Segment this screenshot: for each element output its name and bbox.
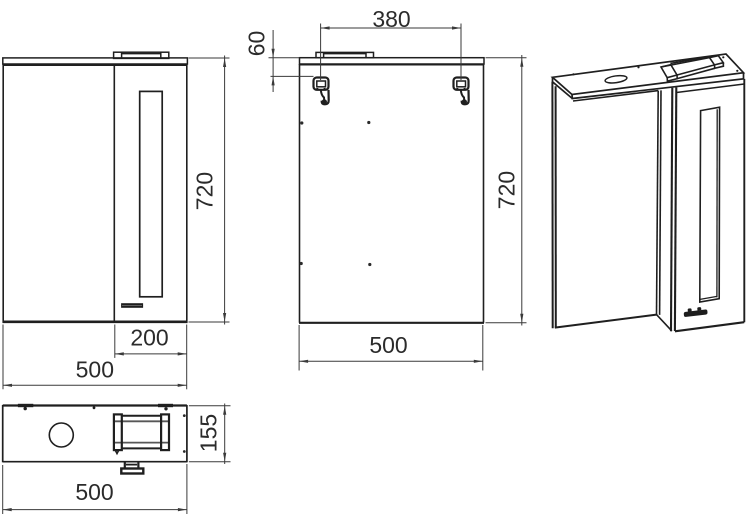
svg-text:500: 500 bbox=[76, 357, 114, 383]
svg-text:720: 720 bbox=[192, 172, 218, 210]
svg-text:200: 200 bbox=[130, 325, 168, 351]
svg-text:500: 500 bbox=[369, 332, 407, 358]
svg-text:720: 720 bbox=[494, 171, 520, 209]
svg-text:500: 500 bbox=[75, 479, 113, 505]
svg-text:155: 155 bbox=[196, 414, 222, 452]
svg-text:380: 380 bbox=[372, 6, 410, 32]
svg-text:60: 60 bbox=[244, 31, 270, 57]
